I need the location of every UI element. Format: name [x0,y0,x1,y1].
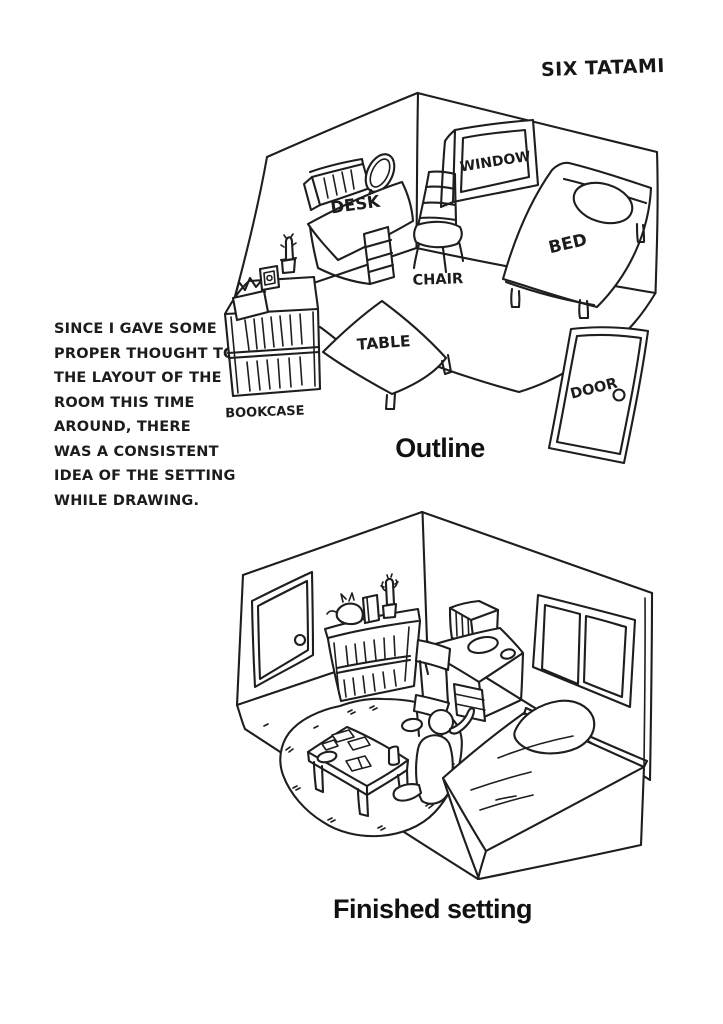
cup-sketch [389,747,399,765]
table-label: TABLE [356,332,411,354]
chair-label: CHAIR [412,271,463,289]
finished-caption: Finished setting [325,894,540,925]
room-size-label: SIX TATAMI [541,55,666,81]
annotation-line: WHILE DRAWING. [54,489,250,514]
window-sketch [533,595,635,707]
outline-caption: Outline [385,433,495,464]
table-sketch: TABLE [323,301,451,409]
desk-sketch: DESK [304,150,413,284]
bookcase-label: BOOKCASE [225,404,305,422]
sketchbook-page: SIX TATAMI SINCE I GAVE SOME PROPER THOU… [0,0,723,1024]
bookcase-sketch [325,574,420,701]
photo-frame-sketch [260,266,279,290]
box-sketch [363,595,379,623]
chair-sketch: CHAIR [412,172,463,289]
cactus-sketch [281,234,296,273]
bookcase-sketch: BOOKCASE [225,234,320,421]
finished-room-sketch [228,498,698,898]
outline-room-sketch: WINDOW BED DESK [212,84,712,474]
door-sketch [252,572,313,687]
door-sketch: DOOR [549,327,648,463]
kettle-sketch [327,593,363,624]
cactus-sketch [381,574,398,618]
bed-sketch [443,701,647,879]
